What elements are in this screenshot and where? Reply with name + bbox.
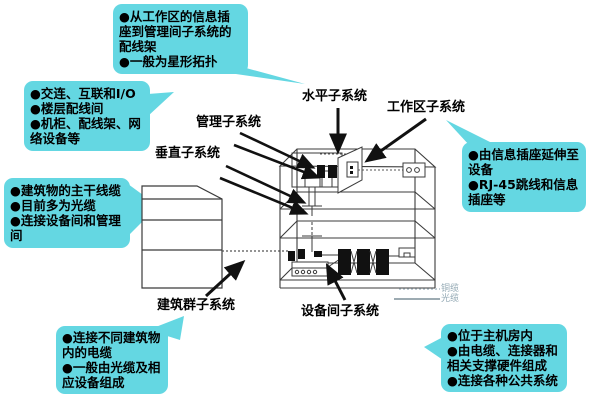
slab-2 — [280, 221, 435, 238]
legend-fiber-label: 光缆 — [441, 294, 459, 304]
vertical-riser — [302, 187, 322, 252]
legend-lines — [394, 289, 440, 299]
callout-campus-note: ●连接不同建筑物内的电缆 ●一般由光缆及相应设备组成 — [56, 326, 168, 394]
callout-line: ●楼层配线间 — [30, 101, 144, 116]
building-annex — [142, 186, 222, 288]
callout-line: ●位于主机房内 — [447, 328, 561, 343]
rack-3 — [376, 249, 389, 275]
callout-line: ●连接不同建筑物内的电缆 — [62, 330, 162, 360]
callout-line: ●由信息插座延伸至设备 — [468, 147, 580, 177]
callout-line: ●RJ-45跳线和信息插座等 — [468, 177, 580, 207]
callout-line: ●一般由光缆及相应设备组成 — [62, 360, 162, 390]
info-outlet-wall — [347, 162, 358, 177]
label-horizontal-subsystem: 水平子系统 — [302, 90, 367, 104]
callout-line: ●连接设备间和管理间 — [10, 213, 124, 243]
structured-cabling-diagram: ●从工作区的信息插座到管理间子系统的配线架 ●一般为星形拓扑 ●交连、互联和I/… — [0, 0, 600, 400]
equipment-room — [288, 248, 415, 276]
callout-line: ●连接各种公共系统 — [447, 373, 561, 388]
label-equipment-room-subsystem: 设备间子系统 — [301, 305, 379, 319]
patch-panel-1 — [317, 165, 325, 178]
callout-line: ●建筑物的主干线缆 — [10, 183, 124, 198]
tail-management-note — [148, 92, 174, 116]
callout-equipment-note: ●位于主机房内 ●由电缆、连接器和相关支撑硬件组成 ●连接各种公共系统 — [441, 324, 567, 392]
callout-line: ●从工作区的信息插座到管理间子系统的配线架 — [119, 9, 242, 54]
callout-workarea-note: ●由信息插座延伸至设备 ●RJ-45跳线和信息插座等 — [462, 142, 586, 212]
legend-copper-label: 铜缆 — [441, 284, 459, 294]
rack-1 — [338, 249, 351, 275]
callout-vertical-note: ●建筑物的主干线缆 ●目前多为光缆 ●连接设备间和管理间 — [4, 178, 130, 248]
callout-line: ●交连、互联和I/O — [30, 86, 144, 101]
callout-horizontal-note: ●从工作区的信息插座到管理间子系统的配线架 ●一般为星形拓扑 — [113, 4, 248, 74]
label-campus-subsystem: 建筑群子系统 — [157, 299, 235, 313]
callout-line: ●由电缆、连接器和相关支撑硬件组成 — [447, 343, 561, 373]
callout-line: ●目前多为光缆 — [10, 198, 124, 213]
callout-management-note: ●交连、互联和I/O ●楼层配线间 ●机柜、配线架、网络设备等 — [24, 81, 150, 151]
rack-2 — [357, 249, 370, 275]
label-management-subsystem: 管理子系统 — [196, 116, 261, 130]
label-vertical-subsystem: 垂直子系统 — [155, 147, 220, 161]
patch-panel-2 — [328, 165, 337, 178]
callout-line: ●一般为星形拓扑 — [119, 54, 242, 69]
callout-line: ●机柜、配线架、网络设备等 — [30, 116, 144, 146]
label-work-area-subsystem: 工作区子系统 — [387, 101, 465, 115]
